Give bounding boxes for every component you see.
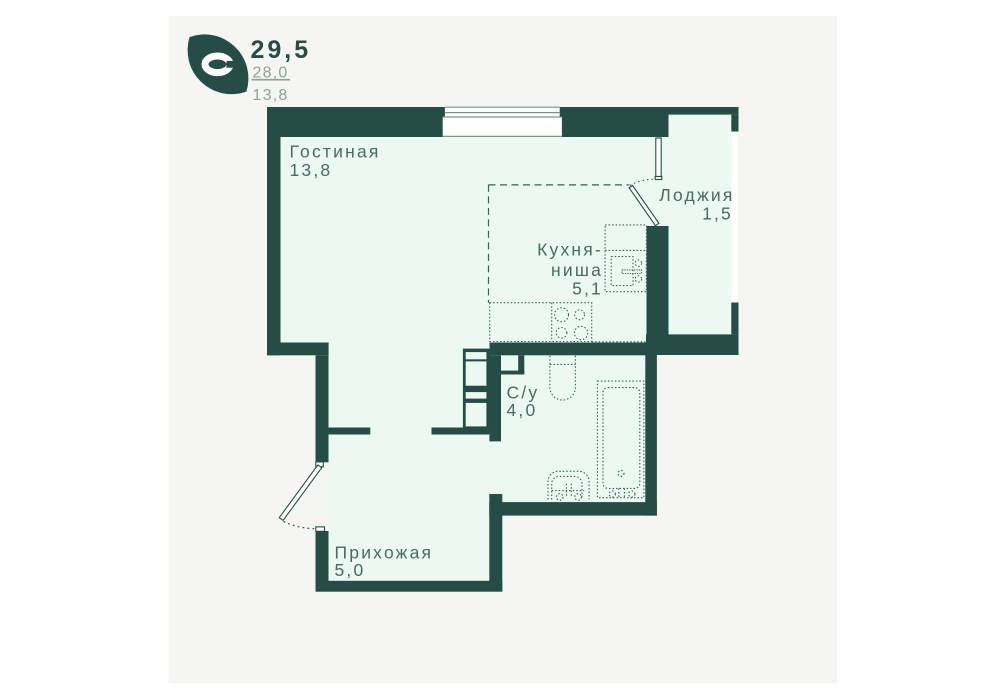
- svg-text:ниша: ниша: [551, 260, 603, 280]
- svg-text:1,5: 1,5: [702, 204, 733, 224]
- svg-text:Гостиная: Гостиная: [290, 142, 381, 162]
- svg-text:13,8: 13,8: [290, 160, 333, 180]
- svg-text:Лоджия: Лоджия: [659, 185, 734, 205]
- svg-text:13,8: 13,8: [253, 87, 289, 104]
- svg-text:4,0: 4,0: [507, 400, 538, 420]
- svg-text:29,5: 29,5: [251, 36, 312, 64]
- svg-text:5,1: 5,1: [572, 279, 603, 299]
- svg-text:5,0: 5,0: [335, 560, 366, 580]
- svg-text:Кухня-: Кухня-: [537, 239, 603, 259]
